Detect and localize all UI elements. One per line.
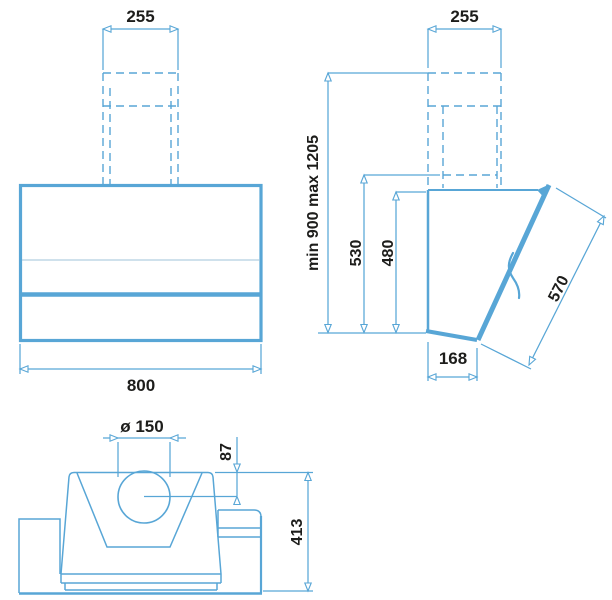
top-body-outline <box>19 471 262 594</box>
hood-dimension-drawing: 255 800 <box>0 0 612 600</box>
dim-label-top-duct-offset: 87 <box>218 443 235 461</box>
dim-label-side-mounting-height: min 900 max 1205 <box>305 135 322 271</box>
dim-label-side-bottom-depth: 168 <box>439 349 467 368</box>
dim-label-top-duct-diameter: ø 150 <box>120 417 163 436</box>
dim-label-front-body-width: 800 <box>127 376 155 395</box>
dim-side-glass-panel: 570 <box>481 188 606 369</box>
technical-drawing: 255 800 <box>0 0 612 600</box>
side-glass-panel <box>478 185 549 340</box>
dim-label-side-body-height: 480 <box>380 240 397 267</box>
dim-label-top-body-depth: 413 <box>289 519 306 546</box>
dim-side-body-height: 480 <box>380 192 426 333</box>
dim-label-side-chimney-height: 530 <box>348 240 365 267</box>
front-chimney-dashed-outline <box>103 73 178 186</box>
dim-top-duct-offset: 87 <box>215 437 313 505</box>
side-body-outline <box>426 185 549 341</box>
dim-label-front-chimney-width: 255 <box>126 7 154 26</box>
dim-front-body-width: 800 <box>20 344 261 395</box>
front-view: 255 800 <box>19 7 262 395</box>
dim-side-bottom-depth: 168 <box>428 342 477 381</box>
top-view: ø 150 87 413 <box>19 417 313 594</box>
top-canopy-inner <box>77 473 202 547</box>
dim-side-mounting-height: min 900 max 1205 <box>305 73 428 333</box>
dim-label-side-glass-panel: 570 <box>545 273 572 305</box>
dim-top-body-depth: 413 <box>263 473 313 592</box>
top-left-box <box>19 519 60 593</box>
top-right-box <box>218 510 261 517</box>
dim-front-chimney-width: 255 <box>103 7 178 70</box>
dim-top-duct-diameter: ø 150 <box>103 417 186 477</box>
front-body-outline <box>19 186 262 341</box>
side-chimney-dashed-outline <box>428 73 501 188</box>
dim-side-chimney-width: 255 <box>428 7 501 68</box>
side-view: 255 min 900 max 1205 530 <box>305 7 606 381</box>
dim-label-side-chimney-width: 255 <box>450 7 478 26</box>
